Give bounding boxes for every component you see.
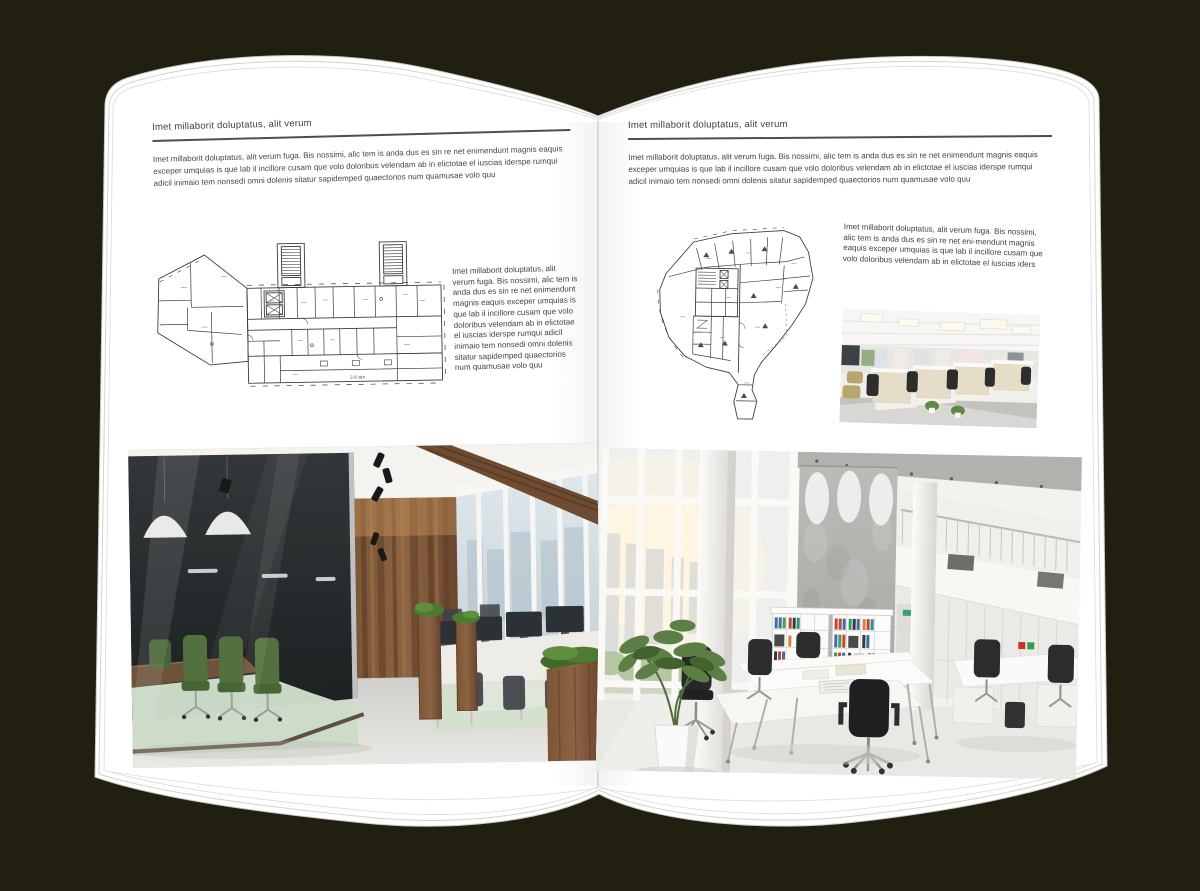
vent bbox=[947, 554, 974, 571]
glass-meeting-room bbox=[128, 453, 364, 756]
left-page-header-block: Imet millaborit doluptatus, alit verum I… bbox=[152, 111, 572, 191]
room-label-marks bbox=[181, 273, 427, 376]
foreground-planter bbox=[540, 645, 602, 761]
right-floor-plan bbox=[633, 220, 836, 425]
wide-building-floor-plan-drawing: 2-й зал bbox=[150, 228, 453, 423]
right-page-header-block: Imet millaborit doluptatus, alit verum I… bbox=[628, 117, 1052, 189]
left-side-text: Imet millaborit doluptatus, alit verum f… bbox=[452, 263, 581, 374]
right-small-office-photo bbox=[839, 309, 1039, 428]
exit-sign bbox=[1027, 642, 1034, 649]
boundary-dashed-line bbox=[763, 303, 788, 355]
dark-wood-office-scene bbox=[128, 443, 602, 768]
right-side-text: Imet millaborit doluptatus, alit verum f… bbox=[843, 222, 1046, 271]
cubicle-office-scene bbox=[839, 309, 1039, 428]
left-floor-plan: 2-й зал bbox=[150, 228, 453, 423]
plan-room-label: 2-й зал bbox=[350, 373, 365, 379]
right-intro-paragraph: Imet millaborit doluptatus, alit verum f… bbox=[628, 149, 1052, 189]
right-office-photo bbox=[596, 448, 1082, 779]
first-aid-sign bbox=[1018, 642, 1025, 649]
uplights bbox=[805, 470, 894, 526]
waste-bin bbox=[1005, 702, 1025, 728]
right-header-rule bbox=[628, 135, 1052, 139]
vent bbox=[1037, 572, 1064, 589]
white-atrium-office-scene bbox=[596, 448, 1082, 779]
magazine-spread-mockup: Imet millaborit doluptatus, alit verum I… bbox=[0, 0, 1200, 891]
fan-building-floor-plan-drawing bbox=[633, 220, 836, 425]
right-page-title: Imet millaborit doluptatus, alit verum bbox=[628, 117, 1052, 131]
left-office-photo bbox=[128, 443, 602, 768]
